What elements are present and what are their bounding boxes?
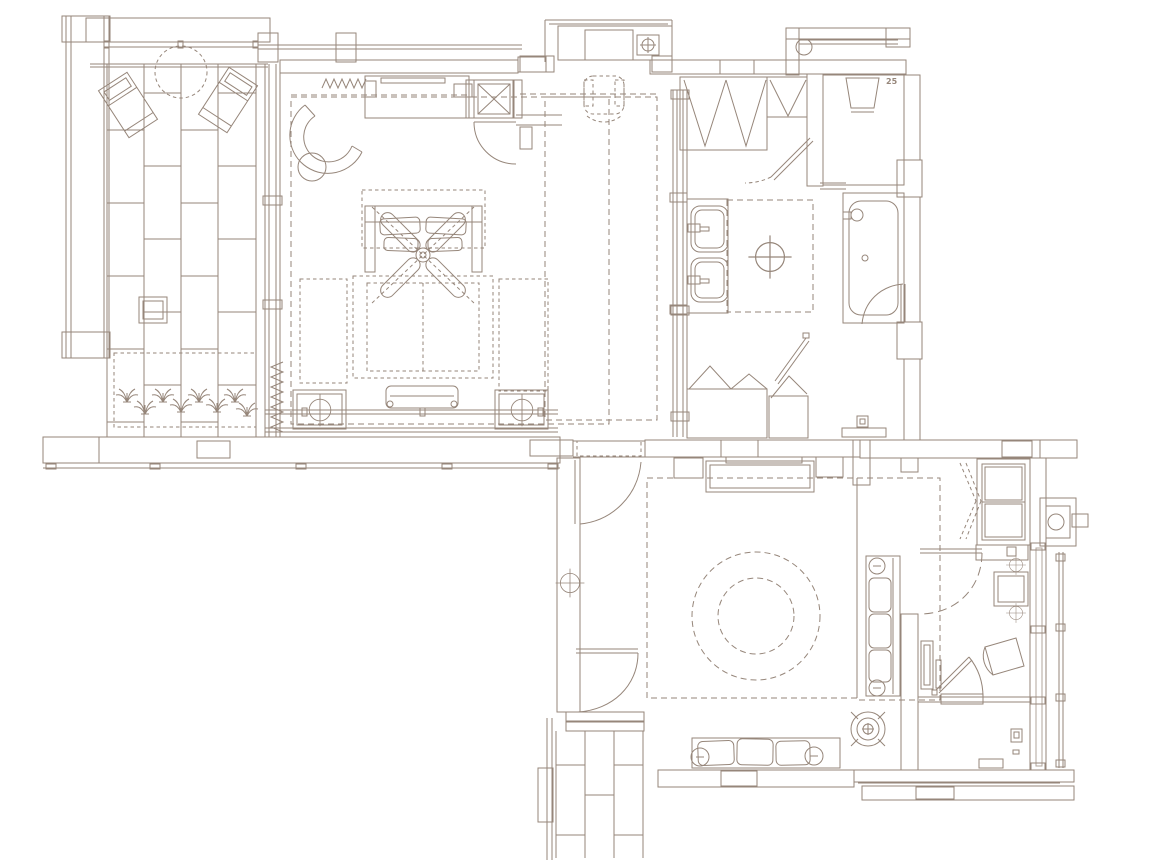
tv-console bbox=[921, 641, 941, 689]
faucet-icon bbox=[688, 276, 700, 284]
nightstand bbox=[300, 279, 347, 383]
closet-door bbox=[775, 333, 809, 384]
terrace-deck bbox=[62, 16, 270, 437]
lounge-chair bbox=[198, 67, 257, 132]
desk bbox=[994, 555, 1028, 623]
deck-steps bbox=[538, 712, 644, 860]
wall-stub bbox=[901, 458, 918, 472]
cushion bbox=[698, 740, 735, 765]
soffit-dashed bbox=[545, 97, 657, 420]
fireplace-column bbox=[466, 80, 522, 118]
ceiling-circle-dashed bbox=[718, 578, 794, 654]
bedroom-west-wall bbox=[263, 64, 283, 437]
faucet-icon bbox=[851, 209, 863, 221]
desk-chair-dashed bbox=[584, 76, 624, 122]
plant-icon bbox=[236, 403, 258, 416]
closet-door bbox=[745, 138, 813, 183]
study bbox=[866, 458, 1088, 770]
living-room bbox=[530, 440, 1077, 800]
bathtub bbox=[843, 193, 904, 323]
bench-sofa bbox=[691, 738, 840, 768]
shower-room: 25 bbox=[820, 75, 904, 189]
curtain-zigzag-icon bbox=[322, 79, 366, 88]
toilet-flush-icon bbox=[857, 416, 868, 427]
plant-icon bbox=[188, 389, 210, 402]
faucet-icon bbox=[688, 224, 700, 232]
toilet-room bbox=[842, 416, 886, 437]
deck-flooring bbox=[556, 731, 643, 858]
clothes-hanger-icon bbox=[770, 80, 806, 116]
clothes-hanger-icon bbox=[689, 366, 767, 389]
side-table bbox=[139, 297, 167, 323]
plant-icon bbox=[134, 401, 156, 414]
stone-wall-band bbox=[43, 437, 560, 469]
shower-niche bbox=[786, 28, 910, 75]
terrace-door bbox=[576, 649, 638, 712]
dimension-label: 25 bbox=[886, 77, 898, 86]
console-table bbox=[706, 457, 814, 492]
entry-threshold bbox=[577, 441, 641, 456]
bedroom bbox=[258, 33, 609, 437]
living-north-wall bbox=[530, 440, 1077, 485]
wardrobe bbox=[960, 459, 1030, 560]
soffit-dashed bbox=[647, 478, 857, 698]
nightstand bbox=[499, 279, 548, 391]
bathroom: 25 bbox=[650, 28, 922, 440]
bedroom-door bbox=[474, 115, 562, 164]
floor-plan-sheet: 25 bbox=[0, 0, 1170, 860]
cushion bbox=[869, 614, 891, 648]
wall-stipple bbox=[86, 18, 270, 42]
drain-icon bbox=[862, 255, 868, 261]
soffit-dashed bbox=[291, 97, 609, 424]
window-sill bbox=[816, 457, 843, 477]
sink bbox=[688, 206, 728, 252]
desk-chair bbox=[983, 638, 1024, 675]
round-side-table bbox=[298, 153, 326, 181]
clothes-hanger-icon bbox=[684, 80, 766, 146]
spa-target-icon bbox=[851, 712, 885, 746]
sink bbox=[688, 258, 728, 302]
insulation-zigzag-icon bbox=[271, 362, 283, 432]
window-sill bbox=[674, 458, 703, 478]
closet-north bbox=[680, 77, 813, 183]
closet-south bbox=[687, 333, 809, 438]
toilet-door bbox=[862, 284, 905, 324]
shower-head-icon bbox=[846, 78, 879, 108]
dressing-corridor bbox=[520, 20, 689, 437]
wall-stipple bbox=[62, 332, 110, 358]
bedroom-north-wall bbox=[258, 33, 546, 73]
wall-stipple bbox=[520, 56, 554, 72]
study-east-wall bbox=[1030, 458, 1046, 770]
double-vanity bbox=[670, 193, 728, 314]
plant-icon bbox=[206, 399, 228, 412]
glass-wall bbox=[1056, 552, 1065, 768]
plant-icon bbox=[224, 389, 246, 402]
study-west-wall bbox=[901, 614, 918, 770]
entry-door bbox=[575, 460, 641, 524]
outdoor-shower-icon bbox=[1048, 514, 1064, 530]
plant-icon bbox=[116, 389, 138, 402]
bed bbox=[353, 190, 493, 378]
foot-bench bbox=[386, 386, 458, 408]
toilet-flush-icon bbox=[1011, 729, 1022, 742]
sofa bbox=[866, 556, 900, 696]
divider-wall bbox=[807, 74, 823, 186]
ceiling-light-icon bbox=[748, 235, 791, 278]
cushion bbox=[737, 739, 773, 766]
equipment-box-icon bbox=[637, 35, 659, 55]
door-step bbox=[566, 712, 644, 721]
outdoor-shower-fixture bbox=[1040, 498, 1088, 546]
deck-flooring bbox=[107, 64, 256, 437]
wall-stipple bbox=[652, 56, 672, 72]
plant-icon bbox=[152, 389, 174, 402]
wc-room bbox=[918, 694, 1030, 768]
bathroom-east-wall bbox=[897, 75, 922, 440]
bifold-door-dashed bbox=[960, 463, 981, 539]
band-note-block bbox=[197, 441, 230, 458]
living-south-wall bbox=[658, 770, 1074, 800]
ceiling-circle-dashed bbox=[692, 552, 820, 680]
planter-box bbox=[114, 353, 258, 427]
cushion bbox=[869, 650, 891, 682]
cushion bbox=[869, 578, 891, 612]
floor-plan-drawing: 25 bbox=[0, 0, 1170, 860]
study-door bbox=[920, 549, 982, 614]
ceiling-fan-icon bbox=[372, 207, 474, 303]
door-step bbox=[566, 722, 644, 731]
outdoor-shower-icon bbox=[796, 39, 812, 55]
bathroom-north-wall bbox=[650, 60, 906, 74]
deck-rail bbox=[90, 41, 268, 67]
